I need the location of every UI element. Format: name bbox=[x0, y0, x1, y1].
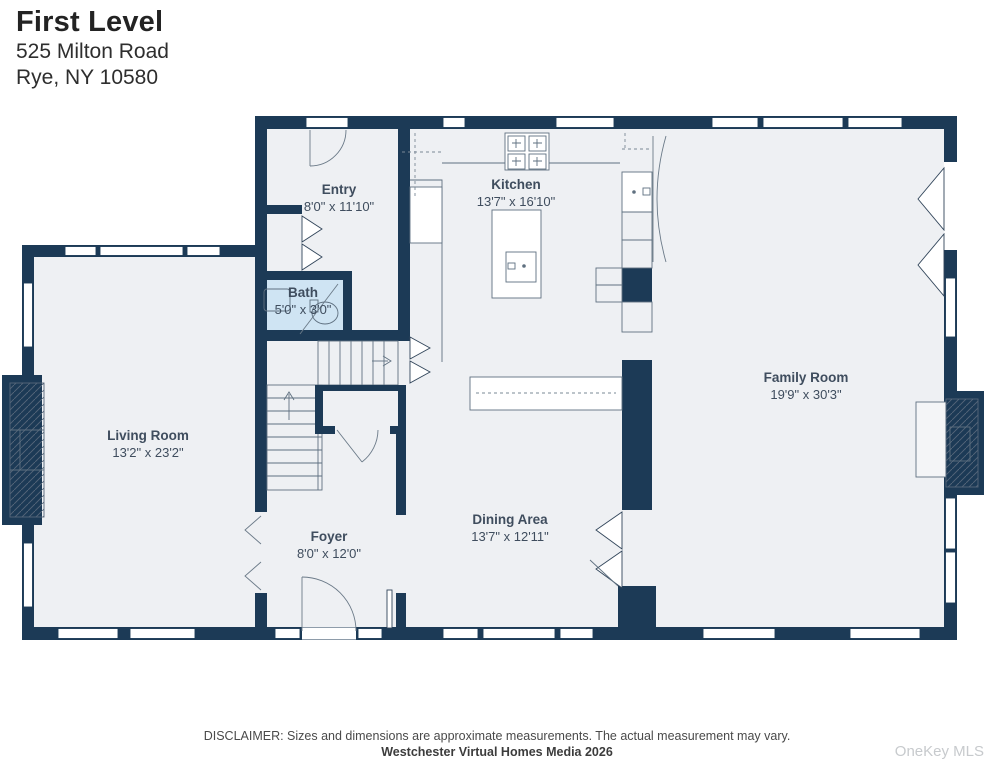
window bbox=[946, 498, 956, 549]
window bbox=[946, 552, 956, 603]
window bbox=[848, 118, 902, 128]
room-label-bath: Bath bbox=[288, 285, 318, 300]
wall-entry-kitchen bbox=[398, 129, 410, 335]
wall-under-bath bbox=[255, 330, 410, 341]
living-room-fireplace bbox=[2, 375, 44, 525]
kitchen-island bbox=[492, 210, 541, 298]
window bbox=[560, 629, 593, 639]
room-dims-living: 13'2" x 23'2" bbox=[112, 445, 184, 460]
room-label-kitchen: Kitchen bbox=[491, 177, 541, 192]
wall-foyer-dining-upper bbox=[396, 432, 406, 515]
window bbox=[100, 247, 183, 256]
window bbox=[763, 118, 843, 128]
window bbox=[187, 247, 220, 256]
entry-door-gap bbox=[306, 118, 348, 128]
window bbox=[358, 629, 382, 639]
window bbox=[556, 118, 614, 128]
wall-dining-family bbox=[622, 360, 652, 510]
floor-plan-drawing: Entry 8'0" x 11'10" Kitchen 13'7" x 16'1… bbox=[0, 0, 994, 768]
window bbox=[24, 543, 33, 607]
kitchen-peninsula bbox=[470, 377, 622, 410]
room-dims-kitchen: 13'7" x 16'10" bbox=[477, 194, 556, 209]
window bbox=[24, 283, 33, 347]
window bbox=[850, 629, 920, 639]
floor-plan-page: First Level 525 Milton Road Rye, NY 1058… bbox=[0, 0, 994, 768]
credit-text: Westchester Virtual Homes Media 2026 bbox=[0, 745, 994, 759]
window bbox=[946, 278, 956, 337]
front-door-gap bbox=[302, 628, 356, 640]
wall-kitchen-stub bbox=[622, 268, 652, 302]
room-dims-entry: 8'0" x 11'10" bbox=[304, 199, 375, 214]
window bbox=[703, 629, 775, 639]
wall-bath-east bbox=[343, 271, 352, 337]
wall-living-foyer-stub bbox=[255, 593, 267, 627]
room-label-living: Living Room bbox=[107, 428, 189, 443]
wall-foyer-dining-stub bbox=[396, 593, 406, 628]
wall-living-foyer bbox=[255, 257, 267, 512]
room-dims-bath: 5'0" x 3'0" bbox=[275, 302, 332, 317]
room-dims-family: 19'9" x 30'3" bbox=[770, 387, 842, 402]
room-dims-dining: 13'7" x 12'11" bbox=[471, 529, 549, 544]
mls-watermark: OneKey MLS bbox=[895, 743, 984, 760]
plan-footer: DISCLAIMER: Sizes and dimensions are app… bbox=[0, 729, 994, 759]
window bbox=[65, 247, 96, 256]
room-dims-foyer: 8'0" x 12'0" bbox=[297, 546, 361, 561]
window bbox=[58, 629, 118, 639]
window bbox=[483, 629, 555, 639]
wall-closet-top bbox=[255, 205, 302, 214]
window bbox=[443, 118, 465, 128]
wall-entry-west bbox=[255, 116, 267, 257]
window bbox=[712, 118, 758, 128]
room-label-dining: Dining Area bbox=[472, 512, 548, 527]
chimney-block bbox=[618, 586, 656, 627]
disclaimer-text: DISCLAIMER: Sizes and dimensions are app… bbox=[0, 729, 994, 743]
window bbox=[443, 629, 478, 639]
foyer-dining-door-leaf bbox=[387, 590, 392, 628]
room-label-entry: Entry bbox=[322, 182, 357, 197]
wall-bath-top bbox=[255, 271, 352, 280]
stove bbox=[505, 133, 549, 170]
french-door-gap bbox=[944, 162, 957, 250]
window bbox=[275, 629, 300, 639]
room-label-family: Family Room bbox=[764, 370, 849, 385]
window bbox=[130, 629, 195, 639]
room-label-foyer: Foyer bbox=[311, 529, 349, 544]
